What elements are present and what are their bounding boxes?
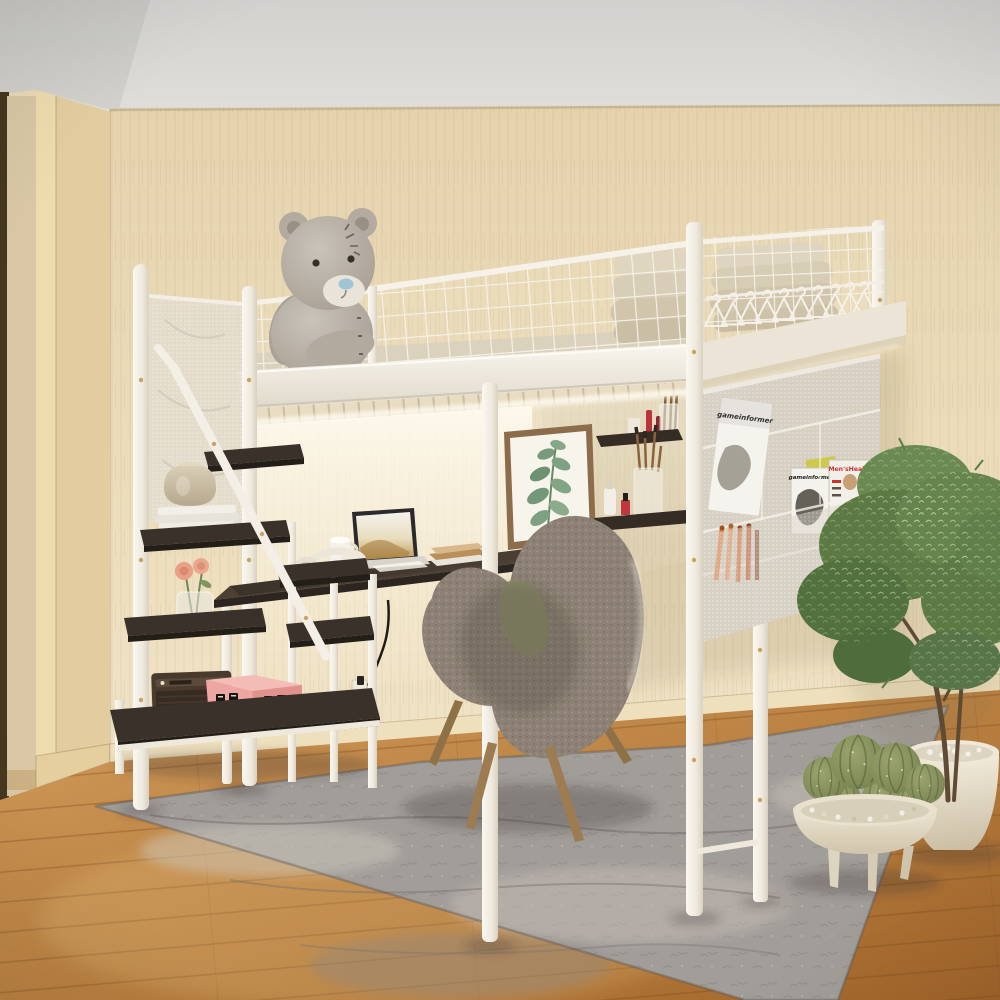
rendered-bedroom-photo: gameinformer gameinformer Men'sHealth <box>0 0 1000 1000</box>
vignette <box>0 0 1000 1000</box>
scene-canvas: gameinformer gameinformer Men'sHealth <box>0 0 1000 1000</box>
